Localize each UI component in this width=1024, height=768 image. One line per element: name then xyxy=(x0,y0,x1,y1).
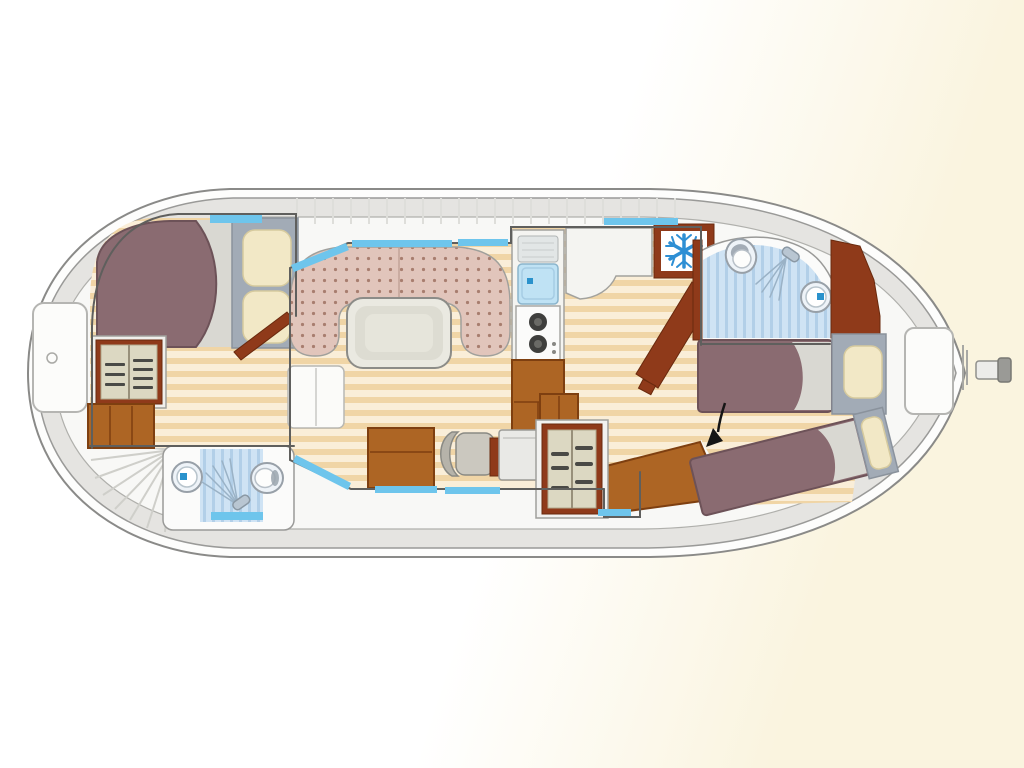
vanity-desk xyxy=(490,430,543,480)
lower-window-1 xyxy=(375,486,437,493)
floorplan-svg xyxy=(0,0,1024,768)
bow-double-bed xyxy=(97,221,216,347)
wardrobe xyxy=(536,420,608,518)
aft-sink-icon xyxy=(801,282,831,312)
entry-steps xyxy=(288,366,344,428)
aft-single-bed-1 xyxy=(698,334,886,414)
wardrobe-side-window xyxy=(598,509,631,516)
bow-dresser xyxy=(88,404,154,448)
storage-cabinet xyxy=(368,428,434,488)
stern-detail-lines xyxy=(963,345,967,390)
galley-sink-icon xyxy=(518,264,558,304)
saloon-window-1 xyxy=(352,240,452,247)
toilet-icon xyxy=(251,463,283,493)
forward-shower-room xyxy=(163,446,294,530)
sink-icon xyxy=(172,462,202,492)
houseboat-floorplan-image xyxy=(0,0,1024,768)
galley-window xyxy=(604,218,678,225)
drainboard xyxy=(518,236,558,262)
aft-shower-room xyxy=(693,235,880,340)
bow-bed-pillow-1 xyxy=(243,230,291,286)
stern-locker-panel xyxy=(905,328,953,414)
dinette-table xyxy=(347,298,451,368)
stove-icon xyxy=(516,306,560,360)
bow-deck-hatch xyxy=(33,303,87,412)
bow-wardrobe xyxy=(92,336,166,408)
chair xyxy=(441,432,494,476)
saloon-window-2 xyxy=(458,239,508,246)
tiller xyxy=(976,358,1011,382)
lower-window-2 xyxy=(445,487,500,494)
bow-cabin-window xyxy=(210,215,262,223)
forward-shower-window xyxy=(211,512,263,520)
